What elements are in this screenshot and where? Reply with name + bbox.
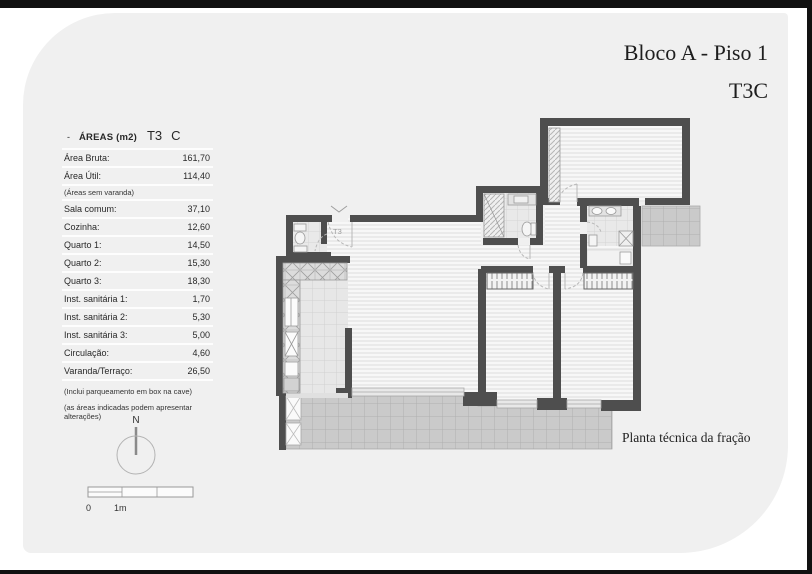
entry-arrow-icon <box>331 206 347 212</box>
table-row: Circulação:4,60 <box>62 343 213 361</box>
table-row: Varanda/Terraço:26,50 <box>62 361 213 379</box>
toilet <box>294 224 306 231</box>
kitchen-counter <box>283 263 347 280</box>
table-row: Quarto 2:15,30 <box>62 253 213 271</box>
room-kitchen <box>300 280 348 393</box>
toilet-bowl <box>522 222 532 236</box>
kitchen-appliance <box>284 378 299 391</box>
room-living <box>348 218 481 393</box>
wardrobe <box>584 273 633 289</box>
corridor-baths <box>545 202 580 245</box>
frame-right <box>807 0 812 574</box>
table-row: Cozinha:12,60 <box>62 217 213 235</box>
terrace-right <box>642 206 700 246</box>
kitchen-appliance <box>285 298 298 326</box>
areas-table: - ÁREAS (m2) T3 C Área Bruta:161,70 Área… <box>62 125 213 428</box>
scale-bar: 0 1m <box>80 482 205 516</box>
frame-top <box>0 0 812 8</box>
table-row: Inst. sanitária 1:1,70 <box>62 289 213 307</box>
entry-label: T3 <box>333 227 342 236</box>
header-title: ÁREAS (m2) <box>79 132 137 143</box>
unit-type-title: T3C <box>624 72 768 110</box>
page: Bloco A - Piso 1 T3C - ÁREAS (m2) T3 C Á… <box>0 0 812 574</box>
frame-bottom <box>0 570 812 574</box>
sheet-titles: Bloco A - Piso 1 T3C <box>624 34 768 110</box>
table-row: Sala comum:37,10 <box>62 199 213 217</box>
scale-meter-label: 1m <box>114 503 127 513</box>
floor-plan: T3 <box>268 108 720 470</box>
toilet-bowl <box>295 232 305 244</box>
table-row: Quarto 3:18,30 <box>62 271 213 289</box>
wardrobe <box>549 128 560 202</box>
bath2-fixture <box>589 235 597 246</box>
table-row: Área Bruta:161,70 <box>62 148 213 166</box>
areas-rows: Área Bruta:161,70 Área Útil:114,40 (Área… <box>62 148 213 381</box>
table-row: Área Útil:114,40 <box>62 166 213 184</box>
plan-caption: Planta técnica da fração <box>622 430 792 446</box>
table-row: Quarto 1:14,50 <box>62 235 213 253</box>
room-bedroom2 <box>561 269 633 406</box>
areas-table-header: - ÁREAS (m2) T3 C <box>62 125 213 148</box>
header-variant: C <box>171 128 180 143</box>
header-type-code: T3 <box>147 128 162 143</box>
block-title: Bloco A - Piso 1 <box>624 34 768 72</box>
table-note: (Áreas sem varanda) <box>62 184 213 199</box>
header-dash: - <box>67 132 70 142</box>
kitchen-sink <box>285 362 298 376</box>
closet-fixture <box>620 252 631 264</box>
compass-north-label: N <box>132 415 139 426</box>
room-bedroom3 <box>548 126 682 202</box>
scale-zero-label: 0 <box>86 503 91 513</box>
sink <box>294 246 307 252</box>
wardrobe <box>487 273 533 289</box>
table-row: Inst. sanitária 3:5,00 <box>62 325 213 343</box>
table-row: Inst. sanitária 2:5,30 <box>62 307 213 325</box>
